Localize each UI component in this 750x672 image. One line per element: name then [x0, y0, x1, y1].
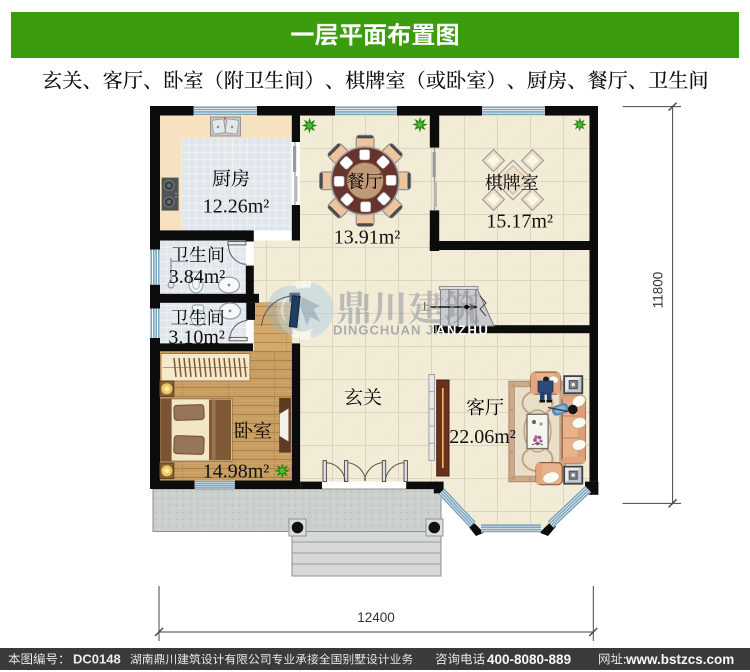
- svg-text:3.84m²: 3.84m²: [169, 266, 226, 288]
- svg-text:ANZHU: ANZHU: [436, 323, 490, 338]
- svg-text:22.06m²: 22.06m²: [449, 426, 516, 448]
- svg-text:11800: 11800: [651, 272, 666, 309]
- svg-text:14.98m²: 14.98m²: [203, 460, 270, 482]
- svg-text:DINGCHUAN JI: DINGCHUAN JI: [333, 323, 439, 338]
- svg-text:15.17m²: 15.17m²: [486, 211, 553, 233]
- svg-text:400-8080-889: 400-8080-889: [487, 652, 571, 667]
- svg-text:12.26m²: 12.26m²: [203, 196, 270, 218]
- svg-text:12400: 12400: [357, 610, 395, 625]
- svg-text:3.10m²: 3.10m²: [168, 326, 225, 348]
- svg-text:DC0148: DC0148: [73, 652, 121, 667]
- svg-text:13.91m²: 13.91m²: [334, 227, 401, 249]
- svg-text:www.bstzcs.com: www.bstzcs.com: [625, 652, 734, 667]
